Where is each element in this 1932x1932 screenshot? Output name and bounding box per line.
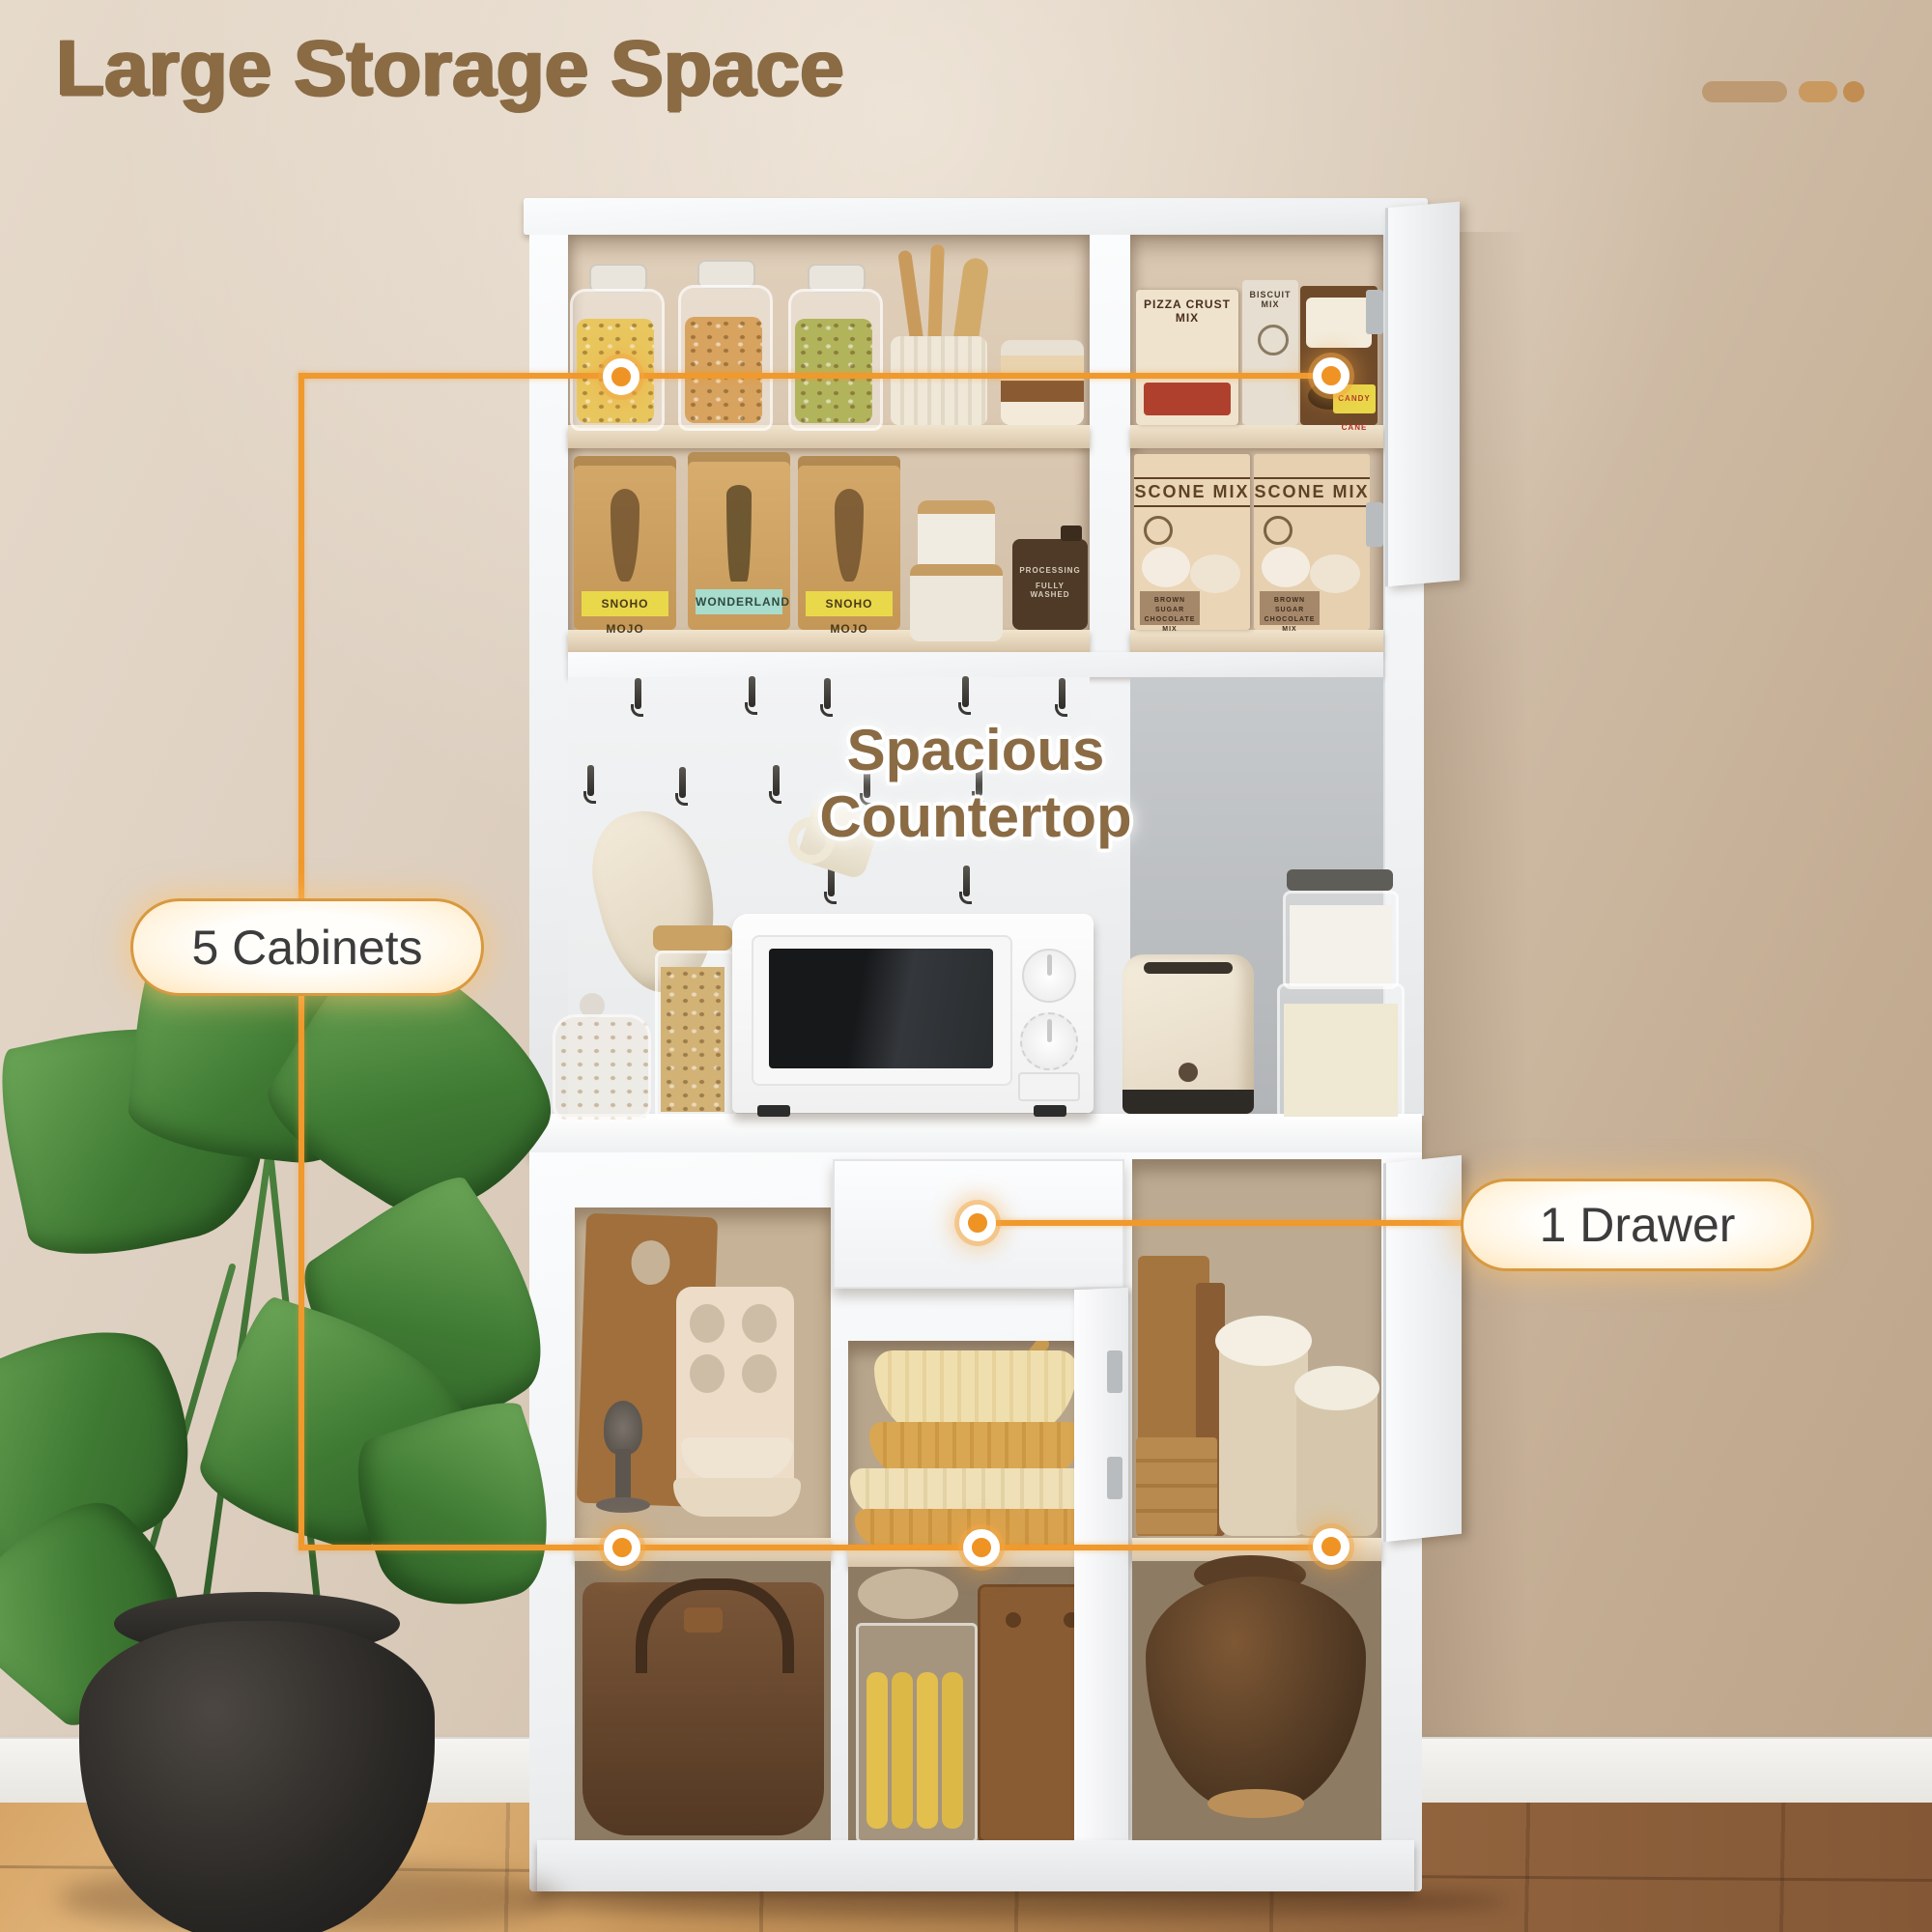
lower-right-cabinet: [1132, 1159, 1381, 1840]
lower-right-open-door: [1383, 1155, 1462, 1543]
door-hinge: [1107, 1457, 1122, 1499]
door-hinge: [1366, 502, 1383, 547]
board-hole: [690, 1354, 724, 1393]
deco-dashes: [1702, 81, 1866, 104]
bowl: [681, 1437, 793, 1480]
callout-line-drawer: [978, 1220, 1464, 1226]
flask-neck: [1061, 526, 1082, 541]
page-title: Large Storage Space: [56, 23, 844, 114]
board-hole: [690, 1304, 724, 1343]
microwave-window: [769, 949, 993, 1068]
white-canister: [910, 564, 1003, 641]
cabinet-kick: [537, 1840, 1414, 1891]
wooden-utensil: [897, 250, 924, 348]
toaster-base: [1122, 1090, 1254, 1114]
coffee-bag: SNOHO MOJO: [798, 456, 900, 630]
lower-right-bottom: [1132, 1561, 1381, 1840]
upper-left-floor: [568, 630, 1090, 652]
callout-line-top: [298, 373, 1334, 379]
wall-hook: [635, 678, 641, 709]
microwave-dial: [1022, 949, 1076, 1003]
scone-box: SCONE MIX BROWN SUGAR CHOCOLATE MIX: [1254, 454, 1370, 630]
wall-hook: [1059, 678, 1065, 709]
bag-print-tree: [726, 485, 752, 582]
pasta-fill: [795, 319, 872, 423]
callout-line-bottom: [298, 1545, 1334, 1550]
flour-canister: [1283, 891, 1399, 989]
dial-pointer: [1047, 954, 1052, 976]
scone-title: SCONE MIX: [1254, 477, 1370, 507]
pasta-jar: [788, 289, 883, 431]
mix-box-biscuit: BISCUIT MIX: [1242, 280, 1298, 425]
scone-subtitle: BROWN SUGAR CHOCOLATE MIX: [1140, 591, 1200, 625]
sauce-jar: [1001, 340, 1084, 425]
drawer-count-label: 1 Drawer: [1540, 1197, 1736, 1253]
candlestick-base: [596, 1497, 650, 1513]
yellow-roll: [867, 1672, 888, 1829]
upper-right-cabinet: PIZZA CRUST MIX BISCUIT MIX CANDY CANE S…: [1130, 235, 1383, 652]
lower-left-cabinet: [575, 1207, 831, 1840]
clay-pot-cork-base: [1207, 1789, 1304, 1818]
scone-subtitle: BROWN SUGAR CHOCOLATE MIX: [1260, 591, 1320, 625]
box-stamp: [1258, 325, 1289, 355]
deco-dash-short: [1799, 81, 1837, 102]
glass-jar-oats: [553, 1014, 651, 1120]
door-hinge: [1107, 1350, 1122, 1393]
deco-dash-long: [1702, 81, 1787, 102]
product-image: Large Storage Space: [0, 0, 1932, 1932]
utensil-crock: [891, 336, 987, 425]
candlestick-stem: [615, 1449, 631, 1501]
candlestick: [604, 1401, 642, 1455]
flour-fill: [1290, 905, 1392, 986]
scone-art: [1310, 554, 1360, 593]
scone-box: SCONE MIX BROWN SUGAR CHOCOLATE MIX: [1134, 454, 1250, 630]
toaster-slot: [1144, 962, 1233, 974]
upper-right-open-door: [1385, 202, 1460, 587]
microwave-foot: [1034, 1105, 1066, 1117]
dial-pointer: [1047, 1019, 1052, 1042]
toaster-knob: [1179, 1063, 1198, 1082]
callout-dot-upper-left-cabinet: [603, 358, 639, 395]
flask-text: FULLY WASHED: [1016, 582, 1084, 599]
cabinets-count-badge: 5 Cabinets: [130, 898, 484, 996]
callout-dot-lower-middle-cabinet: [963, 1529, 1000, 1566]
wall-hook: [749, 676, 755, 707]
wall-hook: [679, 767, 686, 798]
flour-fill: [1284, 1004, 1398, 1117]
coffee-bag: SNOHO MOJO: [574, 456, 676, 630]
box-label: PIZZA CRUST MIX: [1138, 298, 1236, 325]
deco-dash-dot: [1843, 81, 1864, 102]
cereal-panel: [1306, 298, 1372, 348]
coffee-bag: WONDERLAND: [688, 452, 790, 630]
mix-box-pizza: PIZZA CRUST MIX: [1136, 290, 1238, 425]
drawer-count-badge: 1 Drawer: [1461, 1179, 1814, 1271]
basket-toggle: [684, 1607, 723, 1633]
pasta-fill: [685, 317, 762, 423]
bag-label: WONDERLAND: [696, 589, 782, 614]
scone-art: [1142, 547, 1190, 587]
board-hole: [1006, 1612, 1021, 1628]
round-jar-lid: [858, 1569, 958, 1619]
wall-hook: [587, 765, 594, 796]
sauce-layer: [1001, 381, 1084, 402]
upper-cabinet-bottom-rail: [568, 652, 1383, 677]
scone-title: SCONE MIX: [1134, 477, 1250, 507]
sauce-label: [1001, 402, 1084, 425]
board-hole: [742, 1354, 777, 1393]
wooden-utensil: [927, 244, 945, 347]
scone-art: [1190, 554, 1240, 593]
box-label: BISCUIT MIX: [1243, 290, 1297, 309]
cabinets-count-label: 5 Cabinets: [191, 920, 422, 976]
cloth-top-jar: [1219, 1333, 1308, 1536]
pasta-jar: [678, 285, 773, 431]
cloth-cap: [1294, 1366, 1379, 1410]
yellow-roll: [942, 1672, 963, 1829]
storage-basket: [582, 1582, 824, 1835]
cloth-cap: [1215, 1316, 1312, 1366]
upper-left-cabinet: SNOHO MOJO WONDERLAND SNOHO MOJO PROCESS…: [568, 235, 1090, 652]
wall-hook: [962, 676, 969, 707]
grain-jar-lid: [653, 925, 732, 951]
grain-jar: [655, 951, 736, 1120]
bag-print-fish: [835, 489, 864, 582]
board-hole: [742, 1304, 777, 1343]
callout-dot-lower-left-cabinet: [604, 1529, 640, 1566]
wall-hook: [824, 678, 831, 709]
bag-label: SNOHO MOJO: [806, 591, 893, 616]
bowl: [673, 1478, 801, 1517]
flour-canister: [1277, 983, 1405, 1120]
grain-fill: [661, 967, 724, 1112]
countertop-callout: Spacious Countertop: [686, 717, 1265, 850]
callout-dot-drawer: [959, 1205, 996, 1241]
toaster: [1122, 954, 1254, 1114]
microwave: [732, 914, 1094, 1113]
microwave-foot: [757, 1105, 790, 1117]
cabinet-left-frame: [529, 235, 570, 1116]
yellow-roll: [917, 1672, 938, 1829]
wood-crate: [1136, 1437, 1217, 1536]
board-hole: [631, 1239, 671, 1285]
bag-label: SNOHO MOJO: [582, 591, 668, 616]
countertop: [529, 1114, 1422, 1154]
callout-dot-lower-right-cabinet: [1313, 1528, 1350, 1565]
flask-text: PROCESSING: [1016, 566, 1084, 575]
plant-pot: [79, 1621, 435, 1932]
scone-art: [1262, 547, 1310, 587]
cabinet-crown: [524, 198, 1428, 235]
canister-lid: [1287, 869, 1393, 891]
microwave-button: [1018, 1072, 1080, 1101]
clay-pot: [1146, 1577, 1366, 1812]
door-hinge: [1366, 290, 1383, 334]
microwave-dial: [1020, 1012, 1078, 1070]
callout-dot-upper-right-cabinet: [1313, 357, 1350, 394]
bag-print-fish: [611, 489, 639, 582]
dark-flask: PROCESSING FULLY WASHED: [1012, 539, 1088, 630]
wall-hook: [963, 866, 970, 896]
box-art: [1144, 383, 1231, 415]
clear-storage-box: [856, 1623, 978, 1843]
cloth-top-jar: [1296, 1381, 1378, 1536]
yellow-roll: [892, 1672, 913, 1829]
scone-stamp: [1264, 516, 1293, 545]
scone-stamp: [1144, 516, 1173, 545]
